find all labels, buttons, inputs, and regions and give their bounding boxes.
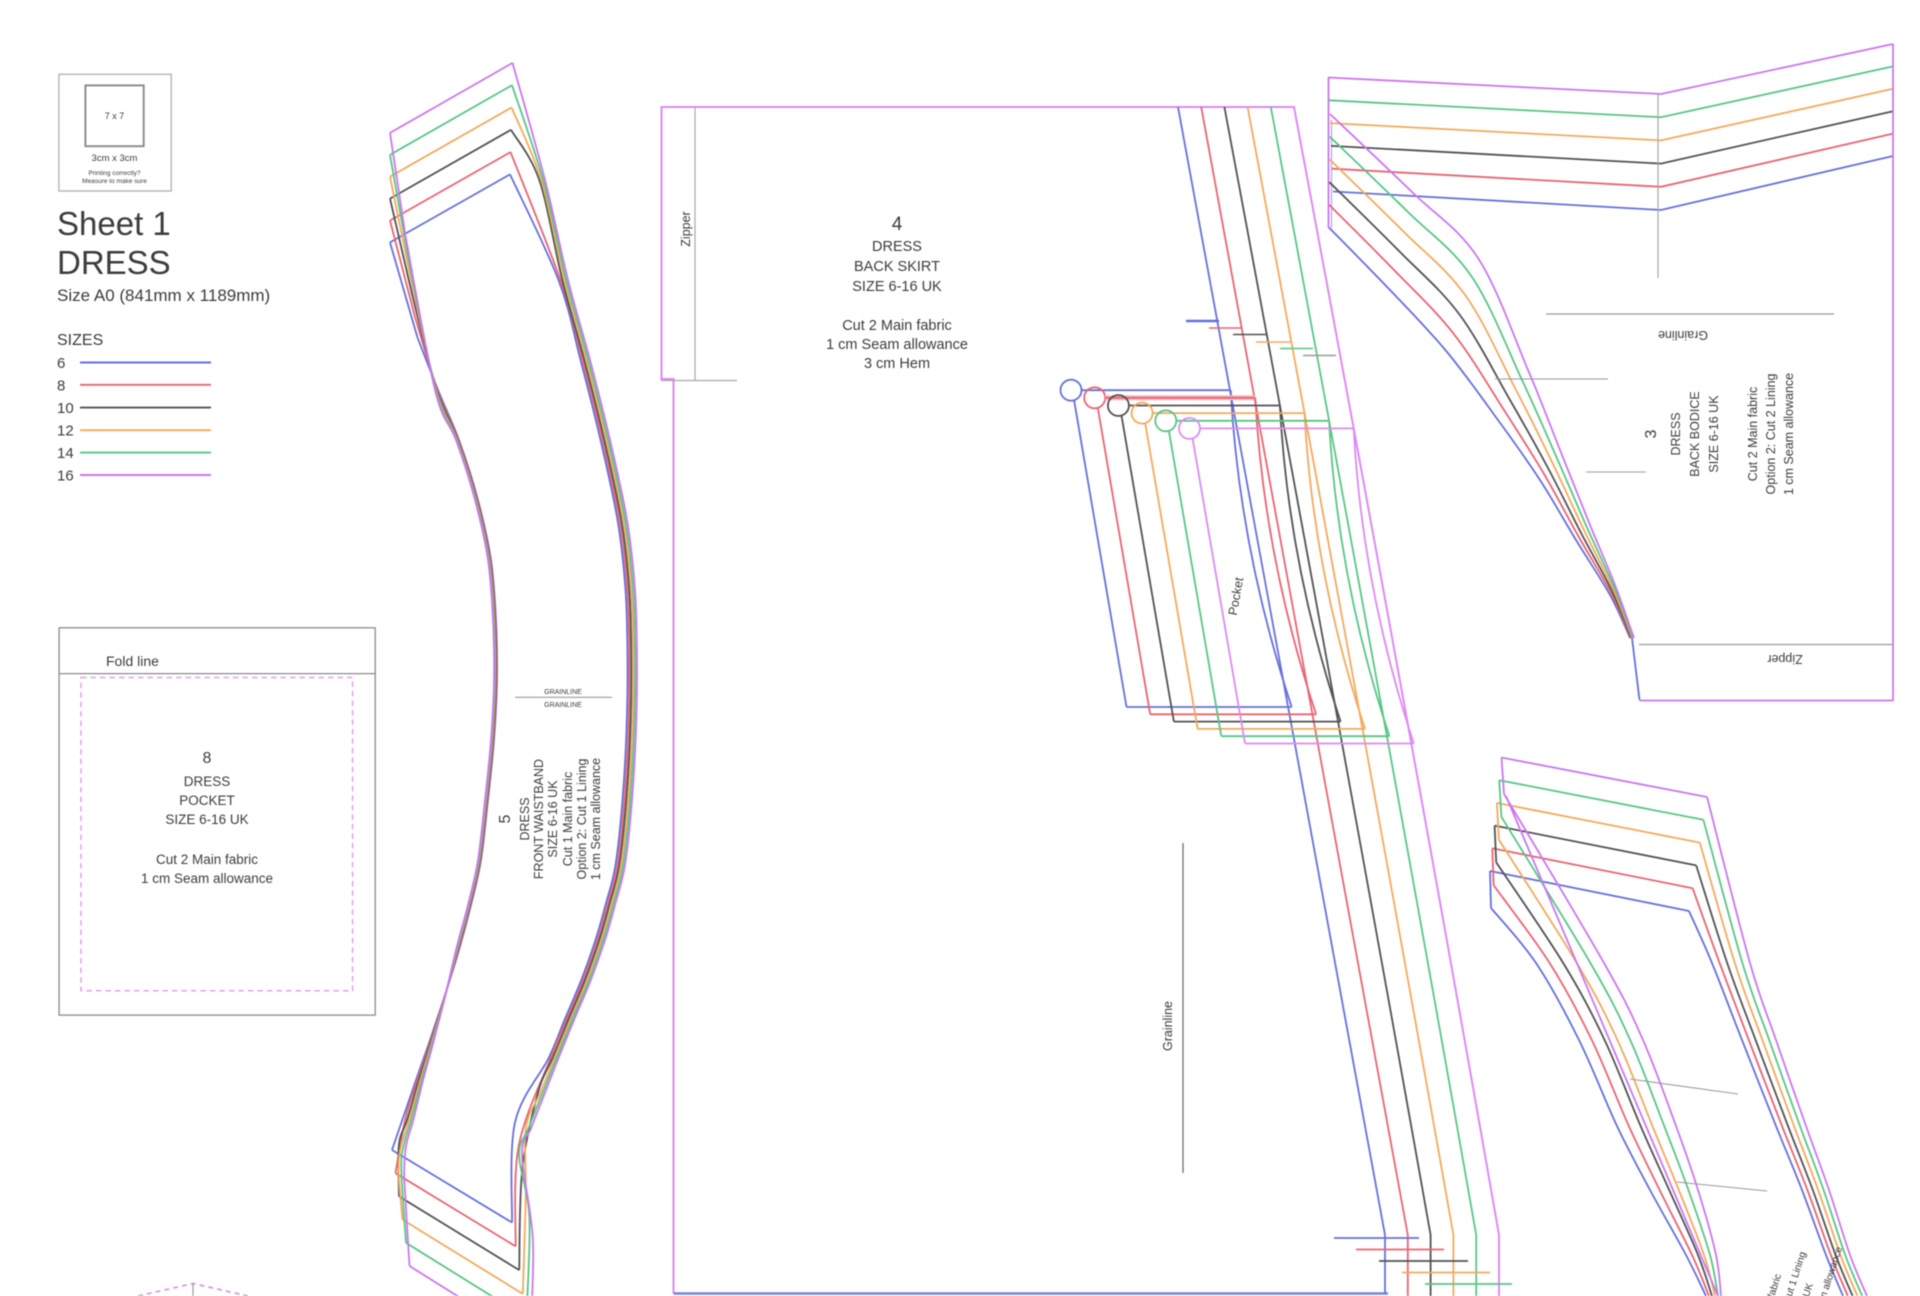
svg-text:SIZE 6-16 UK: SIZE 6-16 UK bbox=[546, 780, 560, 858]
svg-text:Zipper: Zipper bbox=[679, 211, 693, 246]
svg-text:10: 10 bbox=[57, 400, 74, 417]
svg-text:Cut 2 Main fabric: Cut 2 Main fabric bbox=[842, 318, 952, 334]
svg-text:Pocket: Pocket bbox=[1226, 576, 1247, 617]
svg-text:14: 14 bbox=[57, 445, 74, 462]
svg-text:Cut 2 Main fabric: Cut 2 Main fabric bbox=[156, 852, 258, 867]
svg-text:12: 12 bbox=[57, 423, 74, 440]
svg-text:Measure to make sure: Measure to make sure bbox=[82, 178, 147, 185]
svg-text:SIZE 6-16 UK: SIZE 6-16 UK bbox=[165, 812, 248, 827]
svg-text:Cut 1 Main fabric: Cut 1 Main fabric bbox=[1750, 1273, 1784, 1296]
svg-text:8: 8 bbox=[203, 750, 212, 767]
svg-text:Fold line: Fold line bbox=[106, 653, 159, 669]
svg-text:Grainline: Grainline bbox=[1161, 1001, 1175, 1051]
svg-text:Printing correctly?: Printing correctly? bbox=[88, 170, 140, 177]
svg-text:4: 4 bbox=[892, 214, 903, 235]
svg-text:DRESS: DRESS bbox=[184, 774, 231, 789]
svg-text:8: 8 bbox=[57, 377, 65, 394]
svg-text:DRESS: DRESS bbox=[518, 797, 532, 840]
svg-text:1 cm Seam allowance: 1 cm Seam allowance bbox=[141, 871, 273, 886]
svg-text:5: 5 bbox=[497, 814, 514, 823]
svg-text:Option 2: Cut 1 Lining: Option 2: Cut 1 Lining bbox=[575, 759, 589, 880]
svg-text:GRAINLINE: GRAINLINE bbox=[544, 702, 582, 709]
svg-text:1 cm Seam allowance: 1 cm Seam allowance bbox=[1782, 373, 1796, 495]
svg-text:7 x 7: 7 x 7 bbox=[105, 111, 125, 121]
svg-text:SIZE 6-16 UK: SIZE 6-16 UK bbox=[852, 279, 942, 295]
svg-text:6: 6 bbox=[57, 355, 65, 372]
svg-text:3cm x 3cm: 3cm x 3cm bbox=[92, 153, 138, 164]
svg-text:GRAINLINE: GRAINLINE bbox=[544, 689, 582, 696]
svg-text:DRESS: DRESS bbox=[57, 244, 171, 281]
svg-text:SIZE 6-16 UK: SIZE 6-16 UK bbox=[1707, 395, 1721, 473]
svg-text:Zipper: Zipper bbox=[1767, 652, 1802, 666]
svg-text:DRESS: DRESS bbox=[1669, 412, 1683, 455]
svg-text:Cut 1 Main fabric: Cut 1 Main fabric bbox=[561, 772, 575, 866]
svg-text:BACK BODICE: BACK BODICE bbox=[1688, 391, 1702, 476]
svg-text:Grainline: Grainline bbox=[1658, 328, 1708, 342]
svg-text:Size A0 (841mm x 1189mm): Size A0 (841mm x 1189mm) bbox=[57, 286, 270, 305]
svg-text:Cut 2 Main fabric: Cut 2 Main fabric bbox=[1746, 387, 1760, 481]
svg-text:BACK SKIRT: BACK SKIRT bbox=[854, 259, 940, 275]
svg-text:Option 2: Cut 2 Lining: Option 2: Cut 2 Lining bbox=[1764, 374, 1778, 495]
svg-text:SIZES: SIZES bbox=[57, 332, 103, 349]
svg-text:1 cm Seam allowance: 1 cm Seam allowance bbox=[826, 337, 968, 353]
svg-text:POCKET: POCKET bbox=[179, 793, 235, 808]
svg-text:1 cm Seam allowance: 1 cm Seam allowance bbox=[589, 758, 603, 880]
svg-text:FRONT WAISTBAND: FRONT WAISTBAND bbox=[532, 759, 546, 879]
svg-text:Sheet 1: Sheet 1 bbox=[57, 205, 171, 242]
svg-text:16: 16 bbox=[57, 468, 74, 485]
svg-text:DRESS: DRESS bbox=[872, 239, 922, 255]
svg-text:3: 3 bbox=[1643, 429, 1660, 438]
svg-text:3 cm Hem: 3 cm Hem bbox=[864, 356, 930, 372]
